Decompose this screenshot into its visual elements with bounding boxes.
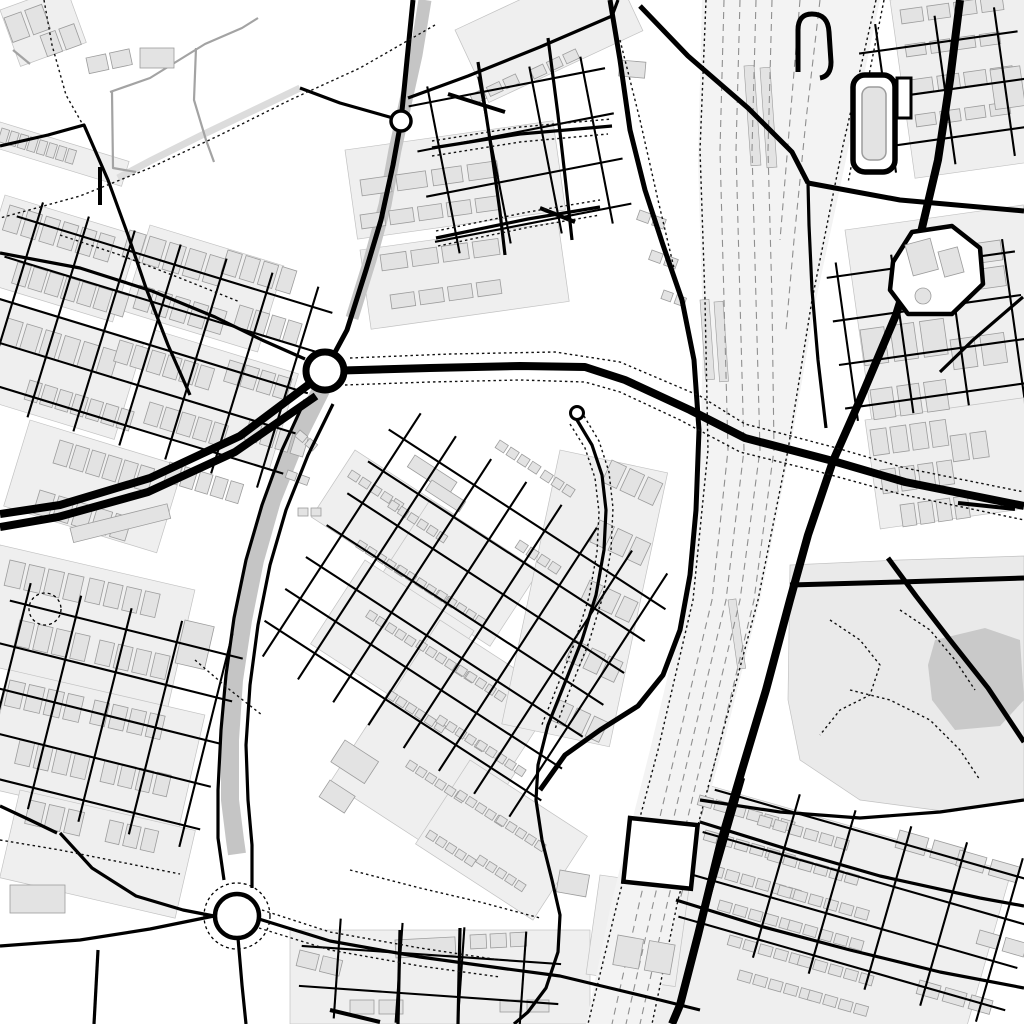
city-map-svg: [0, 0, 1024, 1024]
map-canvas[interactable]: [0, 0, 1024, 1024]
sports-field: [623, 818, 697, 889]
park-area: [788, 556, 1024, 812]
